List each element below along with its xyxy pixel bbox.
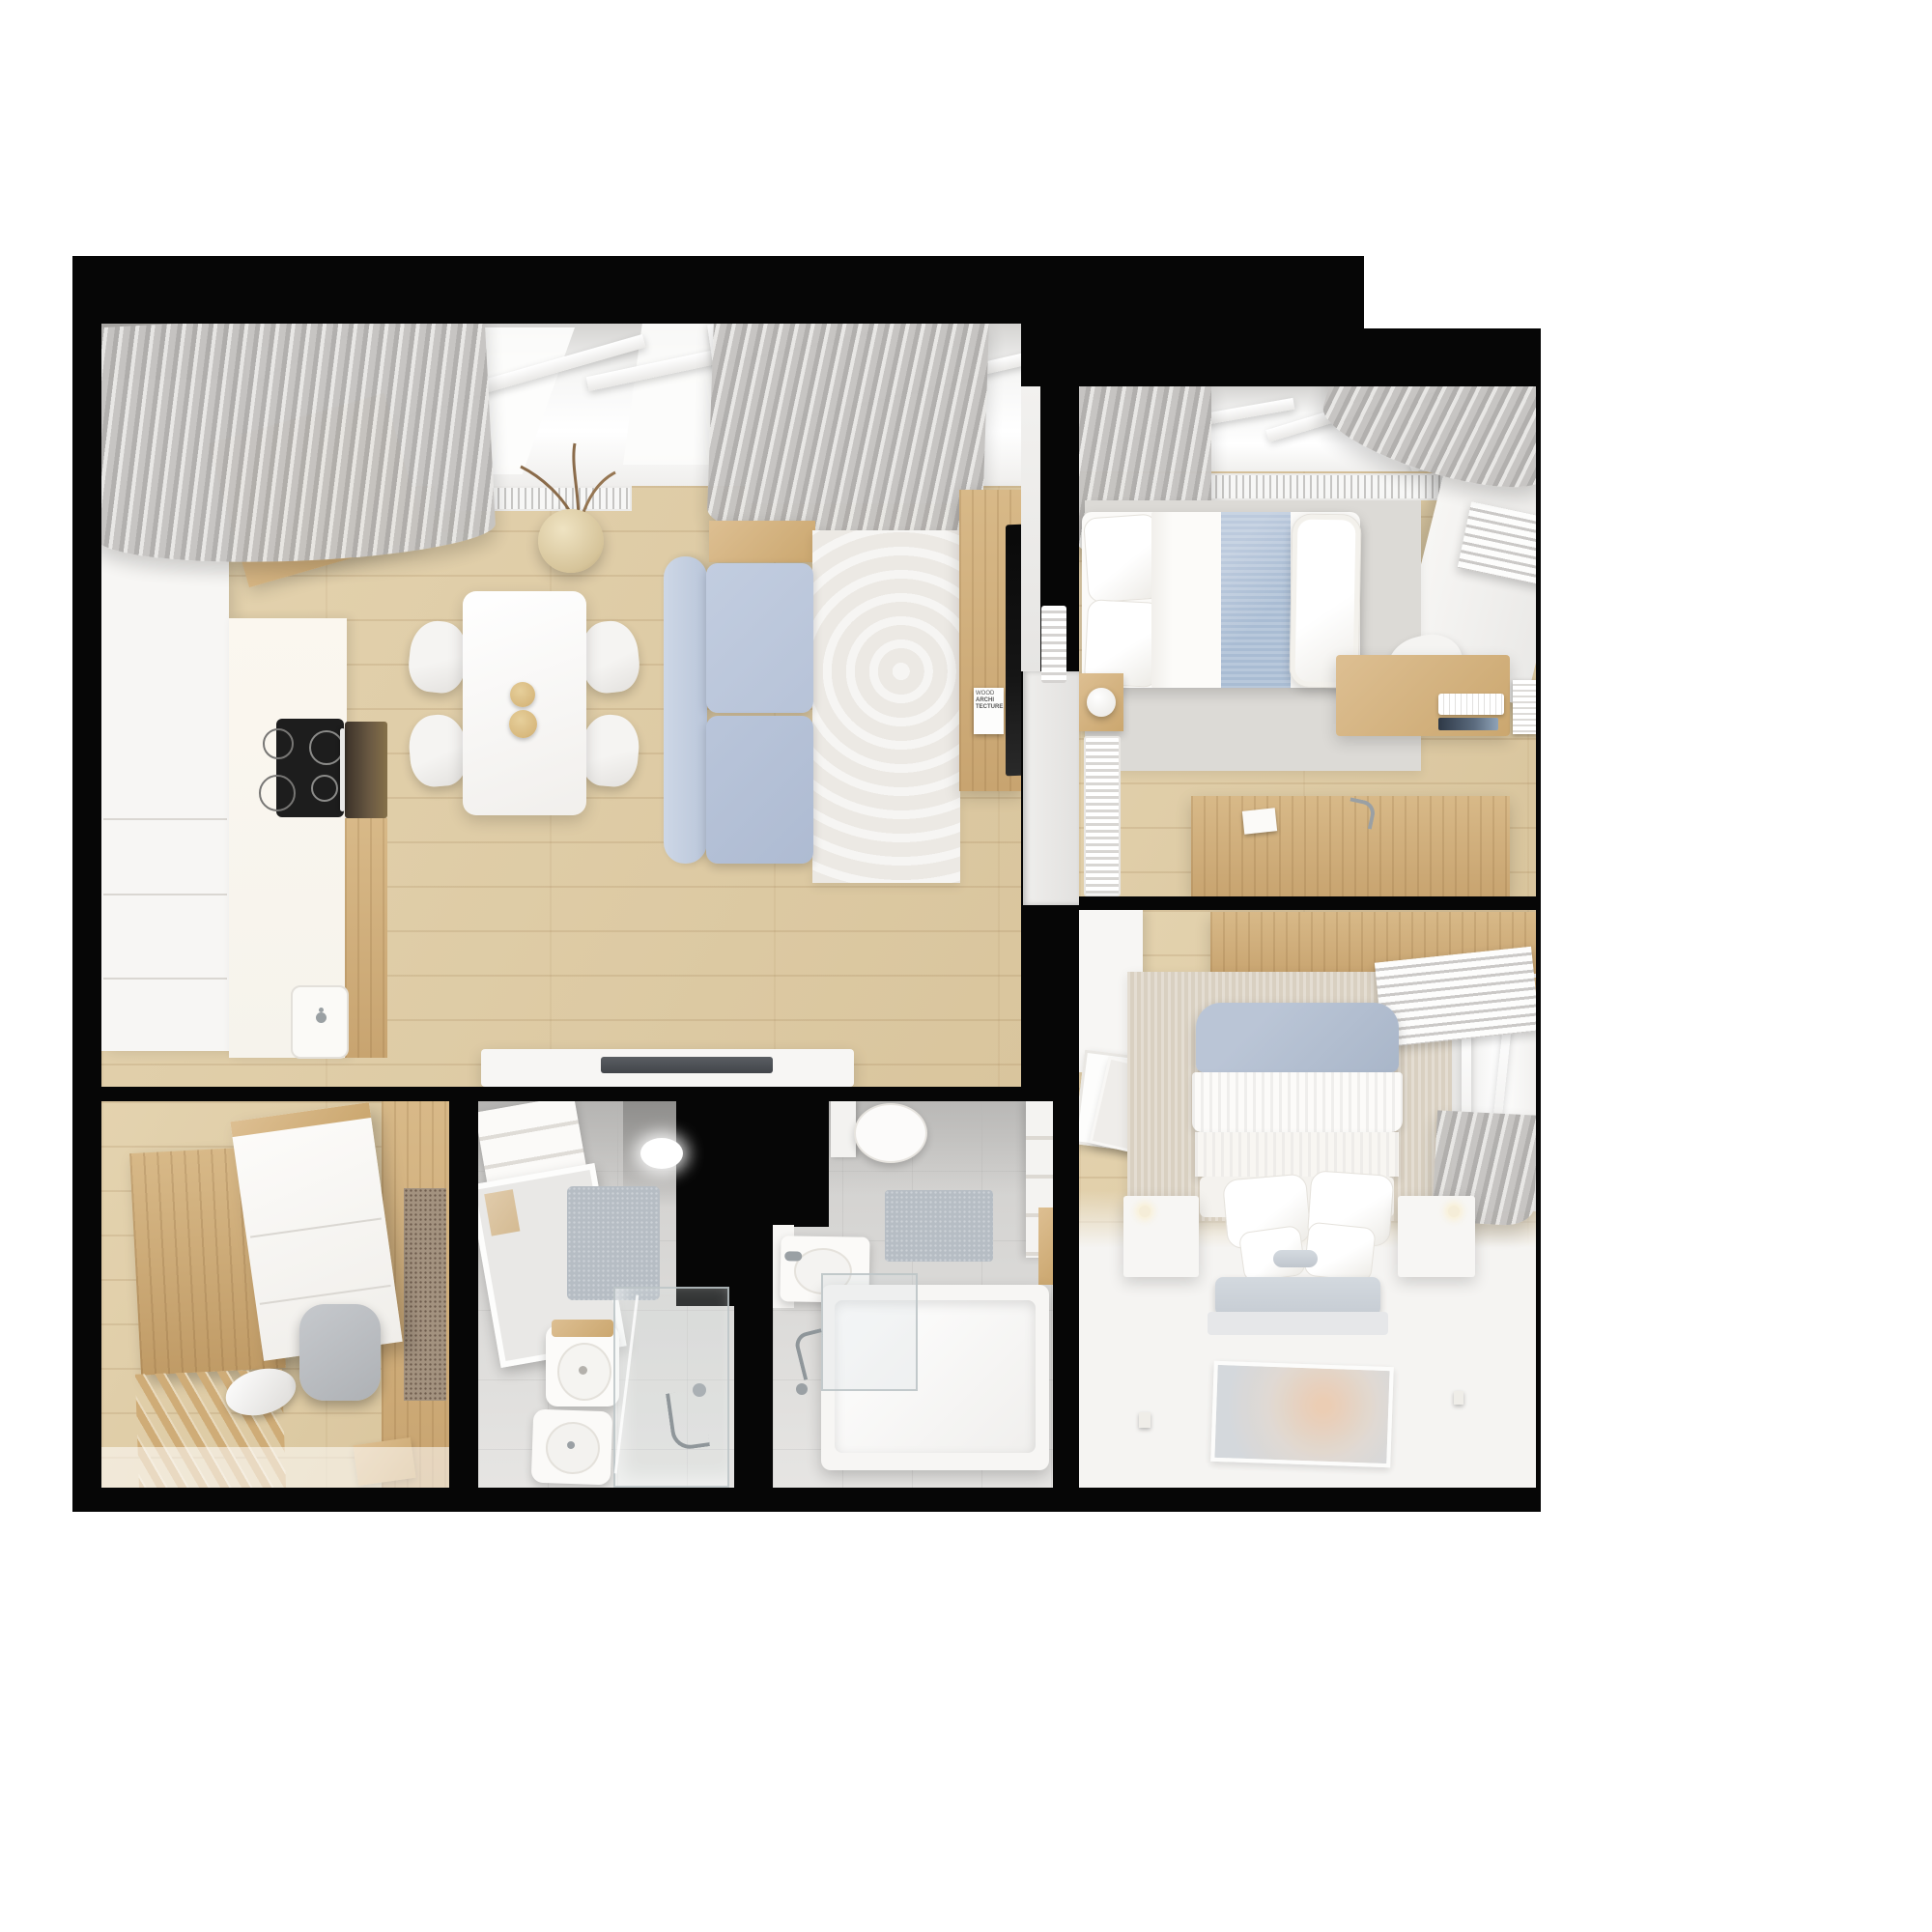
shower-head	[693, 1383, 706, 1397]
faucet-chrome	[784, 1251, 802, 1261]
floor-candle	[1139, 1412, 1151, 1428]
bath-mat	[885, 1190, 993, 1262]
burner-ring	[259, 775, 296, 811]
entry-mat	[404, 1188, 446, 1401]
small-bedroom	[1079, 386, 1536, 896]
tub-glass-screen	[821, 1273, 918, 1391]
toilet-wood-lid	[552, 1320, 613, 1337]
toilet-unit	[546, 1325, 619, 1406]
cabinet-seam	[103, 978, 227, 980]
sofa-backrest	[664, 556, 707, 864]
living-rug	[812, 530, 960, 883]
entrance-hall	[101, 1101, 449, 1488]
sofa-side-table	[709, 521, 815, 562]
bath-mat	[567, 1186, 660, 1300]
bed-duvet	[1151, 512, 1221, 688]
poster-line: ARCHI	[976, 697, 1002, 704]
floor-plan-render: WOOD ARCHI TECTURE	[0, 0, 1932, 1932]
sofa-seat-cushion	[706, 563, 813, 713]
poster-line: WOOD	[976, 691, 1002, 697]
wall-notch	[773, 1101, 829, 1227]
wall-notch	[676, 1101, 734, 1306]
wall-radiator	[1041, 606, 1066, 683]
lower-basin-unit	[531, 1409, 613, 1486]
curtain	[706, 324, 989, 553]
laptop	[1438, 718, 1498, 730]
kitchen-base-cabinets-wood	[345, 818, 387, 1058]
bathtub-bathroom	[773, 1101, 1053, 1488]
bed-platform	[1207, 1312, 1388, 1335]
foot-bench-cushion	[1215, 1277, 1380, 1316]
nightstand-lamp	[1448, 1206, 1460, 1217]
drawer-seam	[260, 1285, 391, 1305]
curtain	[101, 324, 497, 572]
sideboard-tray	[601, 1057, 773, 1073]
floor-candle	[1454, 1391, 1463, 1405]
keyboard	[1438, 694, 1504, 715]
master-bedroom	[1079, 910, 1536, 1488]
nightstand-lamp	[1139, 1206, 1151, 1217]
vase	[538, 509, 604, 573]
cabinet-seam	[103, 818, 227, 820]
wall-radiator-vertical	[1084, 736, 1121, 896]
paper-stack	[1513, 680, 1536, 734]
burner-ring	[311, 775, 338, 802]
nightstand	[1123, 1196, 1199, 1277]
pouf-gray	[299, 1304, 381, 1401]
bright-floor-sliver	[101, 1447, 449, 1488]
door-leaf	[1023, 671, 1079, 905]
wood-niche	[1038, 1207, 1053, 1285]
oven-handle	[340, 728, 345, 811]
toilet-bowl	[854, 1103, 927, 1163]
poster-card: WOOD ARCHI TECTURE	[974, 688, 1004, 734]
shower-bathroom	[478, 1101, 734, 1488]
wooden-bowl	[510, 682, 535, 707]
bed-pillow	[1083, 513, 1162, 603]
wooden-bowl	[509, 710, 537, 738]
shower-glass	[613, 1287, 729, 1488]
cooktop	[276, 719, 344, 817]
cabinet-seam	[103, 894, 227, 895]
bed-headboard	[1196, 1003, 1399, 1072]
sphere-lamp	[1087, 688, 1116, 717]
floor-artwork	[1210, 1361, 1394, 1467]
bed-blanket-fold	[1192, 1072, 1403, 1132]
burner-ring	[309, 730, 344, 765]
deco-paper	[1242, 808, 1277, 834]
wall-light	[640, 1138, 683, 1169]
sink-faucet	[316, 1012, 327, 1023]
mirror-reflection-wood	[484, 1189, 520, 1236]
oven	[345, 722, 387, 818]
toilet-tank	[831, 1101, 856, 1157]
burner-ring	[263, 728, 294, 759]
bolster-roll	[1273, 1250, 1318, 1267]
page-notch-top-right	[1364, 256, 1546, 328]
bed-blanket-blue	[1221, 512, 1291, 688]
faucet-handle	[796, 1383, 808, 1395]
poster-line: TECTURE	[976, 704, 1002, 711]
tv-screen	[1006, 525, 1021, 777]
bed-blanket-fold	[1195, 1132, 1399, 1177]
drain	[579, 1366, 587, 1375]
kitchen-sink	[291, 985, 349, 1059]
drawer-seam	[250, 1218, 382, 1238]
sofa-seat-cushion	[706, 716, 813, 864]
living-room-kitchen: WOOD ARCHI TECTURE	[101, 324, 1021, 1087]
divider-wall-face	[1021, 386, 1040, 671]
nightstand	[1398, 1196, 1475, 1277]
